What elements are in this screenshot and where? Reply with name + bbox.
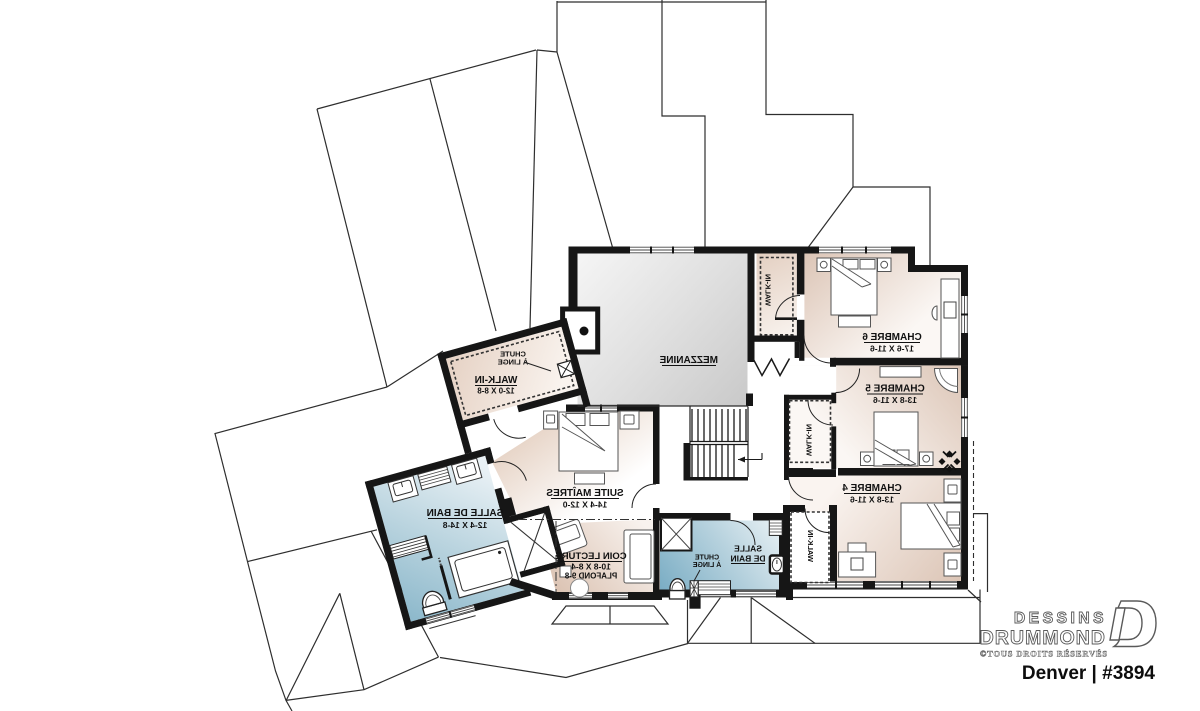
svg-text:14-4 X 12-0: 14-4 X 12-0 (563, 500, 608, 510)
svg-text:CHUTE: CHUTE (695, 555, 719, 562)
svg-text:À LINGE: À LINGE (498, 358, 528, 367)
svg-text:PLAFOND 9-8: PLAFOND 9-8 (564, 572, 617, 581)
svg-text:©TOUS DROITS RÉSERVÉS: ©TOUS DROITS RÉSERVÉS (980, 649, 1108, 659)
svg-text:SALLE DE BAIN: SALLE DE BAIN (427, 508, 504, 519)
svg-text:CHAMBRE 4: CHAMBRE 4 (842, 483, 902, 494)
svg-text:WALK-IN: WALK-IN (805, 424, 814, 456)
svg-text:12-4 X 14-8: 12-4 X 14-8 (443, 520, 488, 530)
svg-text:12-0 X 8-8: 12-0 X 8-8 (477, 387, 515, 396)
svg-text:À LINGE: À LINGE (692, 560, 721, 569)
svg-text:CHAMBRE 5: CHAMBRE 5 (865, 384, 925, 395)
svg-text:COIN LECTURE: COIN LECTURE (555, 551, 626, 562)
svg-text:DRUMMOND: DRUMMOND (980, 627, 1106, 649)
svg-text:Denver | #3894: Denver | #3894 (1022, 663, 1156, 684)
svg-text:CHAMBRE 6: CHAMBRE 6 (862, 332, 922, 343)
svg-text:WALK-IN: WALK-IN (764, 274, 773, 306)
svg-text:DESSINS: DESSINS (1014, 610, 1107, 627)
svg-text:17-6 X 11-6: 17-6 X 11-6 (870, 344, 914, 354)
svg-text:SALLE: SALLE (734, 544, 762, 554)
svg-text:MEZZANINE: MEZZANINE (659, 355, 718, 366)
svg-text:13-8 X 11-6: 13-8 X 11-6 (873, 395, 917, 405)
svg-text:WALK-IN: WALK-IN (475, 375, 518, 386)
svg-text:WALK-IN: WALK-IN (806, 530, 815, 562)
svg-text:13-8 X 11-6: 13-8 X 11-6 (850, 495, 894, 505)
svg-text:SUITE MAÎTRES: SUITE MAÎTRES (546, 486, 624, 499)
svg-text:10-8 X 8-4: 10-8 X 8-4 (571, 562, 611, 572)
svg-text:DE BAIN: DE BAIN (731, 554, 766, 564)
